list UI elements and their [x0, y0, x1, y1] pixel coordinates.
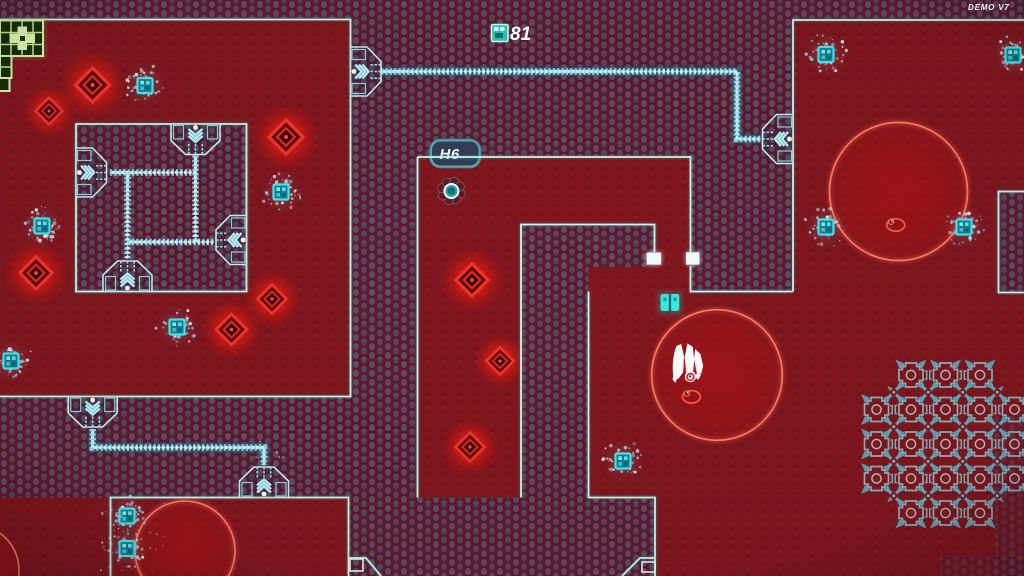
svg-text:81: 81 [510, 24, 531, 45]
svg-text:DEMO V7: DEMO V7 [968, 3, 1010, 12]
